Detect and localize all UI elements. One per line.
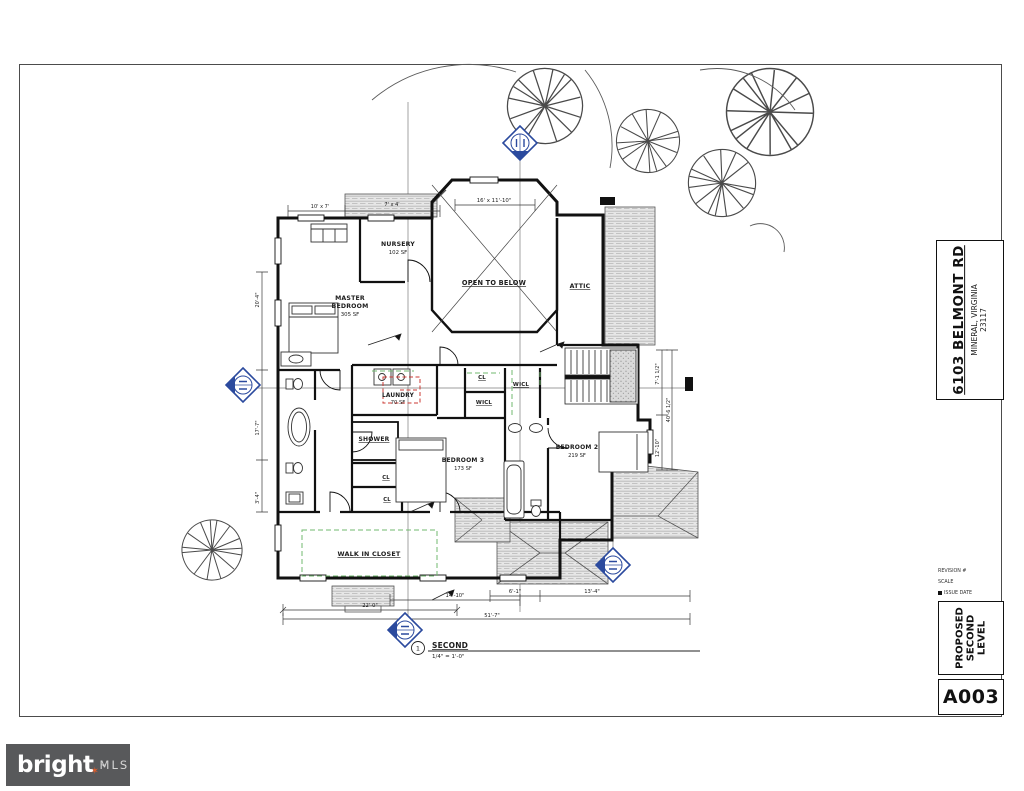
room-area-bedroom3: 173 SF: [454, 466, 472, 472]
room-label-master-1: MASTER: [335, 295, 365, 302]
room-label-master-2: BEDROOM: [332, 303, 369, 310]
brand-trademark: ™: [101, 765, 106, 770]
room-label-bedroom2: BEDROOM 2: [556, 444, 599, 451]
brand-star-icon: ✶: [91, 767, 99, 777]
bright-mls-logo: bright✶™ MLS: [6, 744, 130, 786]
drawing-title-block: PROPOSED SECOND LEVEL: [938, 601, 1004, 675]
roof-hatch-areas: [332, 190, 698, 612]
dim-right-b: 40'-6 1/2": [666, 398, 672, 423]
room-label-laundry: LAUNDRY: [382, 393, 415, 399]
sheet-number-block: A003: [938, 679, 1004, 715]
room-label-walkin-closet: WALK IN CLOSET: [337, 550, 400, 558]
dim-top-left: 10' x 7': [311, 204, 329, 210]
room-area-laundry: 70 SF: [391, 400, 406, 406]
room-label-attic: ATTIC: [570, 283, 591, 290]
room-label-cl-hall: CL: [478, 375, 486, 381]
floor-plan-svg: 1 SECOND 1/4" = 1'-0" NURSERY 102 SF MAS…: [0, 0, 1024, 791]
project-city: MINERAL, VIRGINIA: [970, 284, 979, 356]
room-label-open-to-below: OPEN TO BELOW: [462, 279, 527, 287]
dim-bay: 16' x 11'-10": [477, 198, 512, 204]
dim-bottom-d: 13'-4": [584, 589, 600, 595]
dim-left-b: 17'-7": [255, 420, 261, 435]
revision-label: REVISION #: [938, 566, 1000, 577]
view-name: SECOND: [432, 641, 468, 650]
dim-bottom-c: 6'-1": [509, 589, 521, 595]
title-block-address: 6103 BELMONT RD MINERAL, VIRGINIA 23117: [936, 240, 1004, 400]
callout-number: 1: [416, 645, 420, 653]
architectural-sheet: 1 SECOND 1/4" = 1'-0" NURSERY 102 SF MAS…: [0, 0, 1024, 791]
room-label-nursery: NURSERY: [381, 241, 415, 248]
brand-word-text: bright: [17, 752, 94, 778]
view-title-callout: 1 SECOND 1/4" = 1'-0": [412, 641, 701, 660]
room-label-shower: SHOWER: [359, 436, 390, 443]
dim-left-a: 20'-4": [255, 292, 261, 307]
project-address: 6103 BELMONT RD: [951, 245, 967, 395]
room-label-cl-b: CL: [383, 497, 391, 503]
brand-word: bright✶™: [17, 754, 94, 777]
revision-block: REVISION # SCALE ISSUE DATE: [938, 566, 1000, 599]
scale-label: SCALE: [938, 577, 1000, 588]
room-label-bedroom3: BEDROOM 3: [442, 457, 485, 464]
sheet-number: A003: [943, 686, 999, 708]
room-label-wicl-right: WICL: [513, 382, 530, 388]
stairs: [565, 348, 638, 404]
room-area-nursery: 102 SF: [389, 250, 408, 256]
room-area-bedroom2: 219 SF: [568, 453, 586, 459]
dim-bottom-b: 14'-10": [446, 593, 465, 599]
dim-left-c: 3'-4": [255, 492, 261, 504]
view-scale: 1/4" = 1'-0": [432, 654, 465, 660]
dim-right-c: 12'-10": [655, 439, 661, 457]
issue-date-label: ISSUE DATE: [944, 591, 972, 596]
room-area-master: 305 SF: [341, 312, 360, 318]
dim-overall: 51'-7": [484, 613, 500, 619]
issue-date-marker-icon: [938, 591, 942, 595]
dim-top-mid: 7' x 4': [384, 202, 399, 208]
dim-right-a: 7'-1 1/2": [655, 363, 661, 384]
room-label-wicl-mid: WICL: [476, 400, 493, 406]
project-zip: 23117: [980, 308, 989, 332]
room-label-cl-a: CL: [382, 475, 390, 481]
drawing-title: PROPOSED SECOND LEVEL: [955, 603, 988, 673]
dim-bottom-a: 22'-0": [362, 603, 378, 609]
